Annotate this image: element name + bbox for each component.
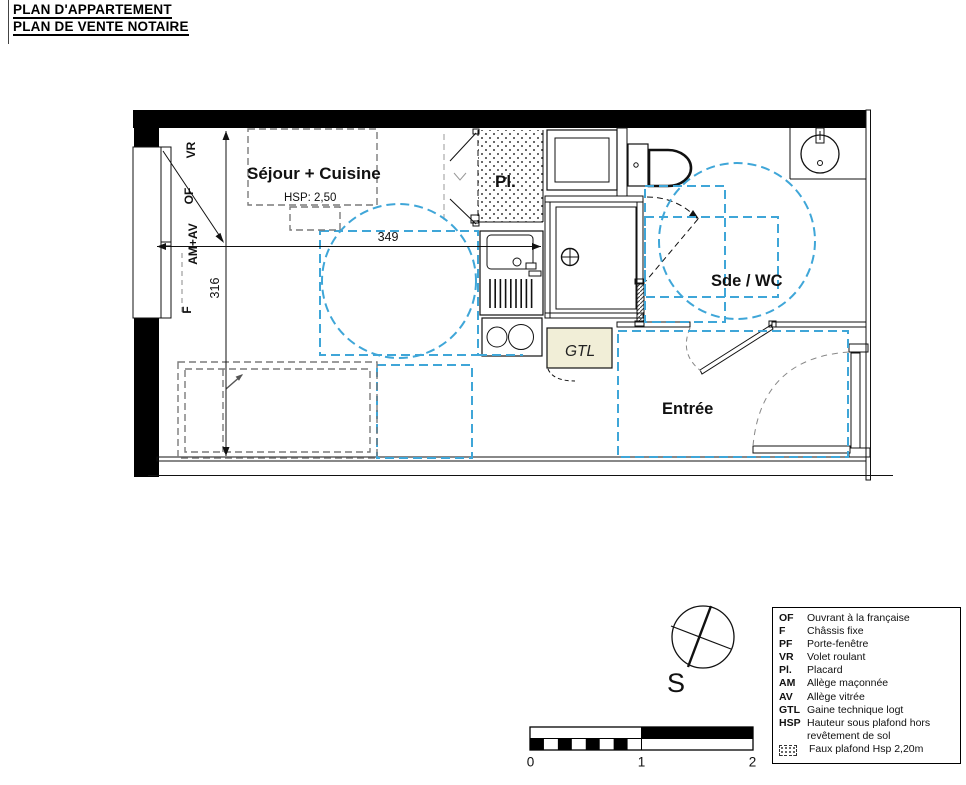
legend-row: GTL Gaine technique logt	[779, 704, 955, 717]
clearance-rect-sejour	[320, 231, 478, 355]
wall-sde-left	[637, 202, 643, 283]
room-label-entree: Entrée	[662, 400, 713, 418]
wall-left-bottom	[134, 318, 159, 477]
legend-row: VR Volet roulant	[779, 651, 955, 664]
room-label-sejour-hsp: HSP: 2,50	[284, 192, 336, 204]
washbasin-drain	[818, 161, 823, 166]
legend-desc: Allège vitrée	[807, 691, 955, 704]
dim-arrow	[223, 131, 230, 140]
scale-label-1: 1	[638, 755, 646, 770]
toilet	[628, 144, 691, 186]
wall-stub-below-entry-door	[849, 448, 870, 457]
legend-abbr: Pl.	[779, 664, 807, 677]
room-label-placard: Pl.	[495, 172, 516, 191]
room-label-sde-wc: Sde / WC	[711, 272, 783, 290]
clearance-rect-sejour-2	[377, 365, 472, 458]
wall-shower-left	[545, 202, 550, 318]
legend-abbr: HSP	[779, 717, 807, 730]
furniture-chair	[290, 207, 340, 230]
legend-abbr: OF	[779, 612, 807, 625]
legend-abbr: F	[779, 625, 807, 638]
legend-row: HSP Hauteur sous plafond hors revêtement…	[779, 717, 955, 743]
washbasin	[790, 128, 866, 179]
legend-abbr: AV	[779, 691, 807, 704]
legend-row-faux-plafond: Faux plafond Hsp 2,20m	[779, 743, 955, 756]
wall-shower-bottom	[545, 313, 643, 318]
window-shutter-housing	[133, 147, 161, 318]
wall-toilet-left	[617, 128, 627, 196]
legend-desc: Allège maçonnée	[807, 677, 955, 690]
faux-plafond-swatch-icon	[779, 745, 797, 756]
window-tag-f: F	[180, 306, 194, 313]
turning-circle-sde	[659, 163, 815, 319]
legend-abbr: PF	[779, 638, 807, 651]
wall-sde-entree-right	[772, 322, 866, 327]
wall-right	[866, 110, 871, 480]
legend-desc: Châssis fixe	[807, 625, 955, 638]
wall-left-top	[134, 110, 159, 147]
dim-value-height: 316	[208, 278, 222, 299]
furniture-bed-outer	[178, 362, 377, 458]
legend-row: F Châssis fixe	[779, 625, 955, 638]
room-label-gtl: GTL	[565, 343, 595, 360]
compass-south-label: S	[667, 668, 685, 698]
folding-door-leaf-bottom	[450, 199, 476, 224]
entry-door-leaf-open	[753, 446, 850, 453]
casement-swing-arrow	[216, 233, 225, 243]
legend-abbr: AM	[779, 677, 807, 690]
legend-desc: Placard	[807, 664, 955, 677]
sink-drain	[513, 258, 521, 266]
compass	[671, 606, 734, 668]
legend-row: PF Porte-fenêtre	[779, 638, 955, 651]
legend: OF Ouvrant à la française F Châssis fixe…	[772, 607, 961, 764]
clearance-rect-sde	[645, 186, 725, 322]
sde-door-swing-arc	[686, 328, 701, 371]
legend-row: Pl. Placard	[779, 664, 955, 677]
legend-abbr: VR	[779, 651, 807, 664]
scale-label-0: 0	[527, 755, 535, 770]
legend-desc: Volet roulant	[807, 651, 955, 664]
appliance-box-inner	[555, 138, 609, 182]
floor-plan-sheet: PLAN D'APPARTEMENT PLAN DE VENTE NOTAIRE	[0, 0, 966, 785]
placard	[444, 129, 543, 226]
hob-burner-left	[487, 327, 507, 347]
faucet-base	[526, 263, 536, 269]
legend-desc: Ouvrant à la française	[807, 612, 955, 625]
hob-burner-right	[509, 325, 534, 350]
wall-shower-top	[545, 196, 643, 202]
dim-value-width: 349	[378, 230, 399, 244]
room-label-sejour: Séjour + Cuisine	[247, 164, 381, 183]
scale-bar	[530, 727, 753, 750]
scale-bar-black-half	[642, 727, 754, 739]
toilet-button	[634, 163, 638, 167]
faucet-spout	[529, 271, 541, 276]
legend-desc: Hauteur sous plafond hors revêtement de …	[807, 717, 955, 743]
turning-circle-sejour	[322, 204, 476, 358]
entry-door-swing-arc	[753, 352, 849, 446]
toilet-bowl	[649, 150, 691, 186]
entry-door-leaf-closed	[851, 353, 860, 448]
legend-abbr: GTL	[779, 704, 807, 717]
window-tag-of: OF	[182, 188, 196, 205]
wall-stub-above-entry-door	[849, 344, 868, 352]
shower-door-leaf	[637, 284, 644, 322]
doors	[686, 321, 860, 453]
legend-row: AV Allège vitrée	[779, 691, 955, 704]
shower-tray	[556, 207, 636, 309]
furniture-bed-inner	[185, 369, 370, 452]
washbasin-bowl	[801, 135, 839, 173]
compass-circle	[672, 606, 734, 668]
legend-desc: Porte-fenêtre	[807, 638, 955, 651]
shower-door-swing-leaf	[646, 219, 698, 281]
folding-door-mark	[454, 173, 466, 180]
window-tag-am-av: AM+AV	[186, 223, 200, 264]
gtl-panel-swing	[548, 369, 575, 381]
legend-row: OF Ouvrant à la française	[779, 612, 955, 625]
wall-top	[133, 110, 866, 128]
legend-desc: Gaine technique logt	[807, 704, 955, 717]
window-tag-vr: VR	[184, 141, 198, 158]
sde-door-leaf	[700, 325, 773, 374]
legend-desc: Faux plafond Hsp 2,20m	[809, 743, 955, 756]
scale-label-2: 2	[749, 755, 757, 770]
window-frame	[161, 147, 171, 318]
legend-row: AM Allège maçonnée	[779, 677, 955, 690]
folding-door-leaf-top	[450, 133, 476, 161]
